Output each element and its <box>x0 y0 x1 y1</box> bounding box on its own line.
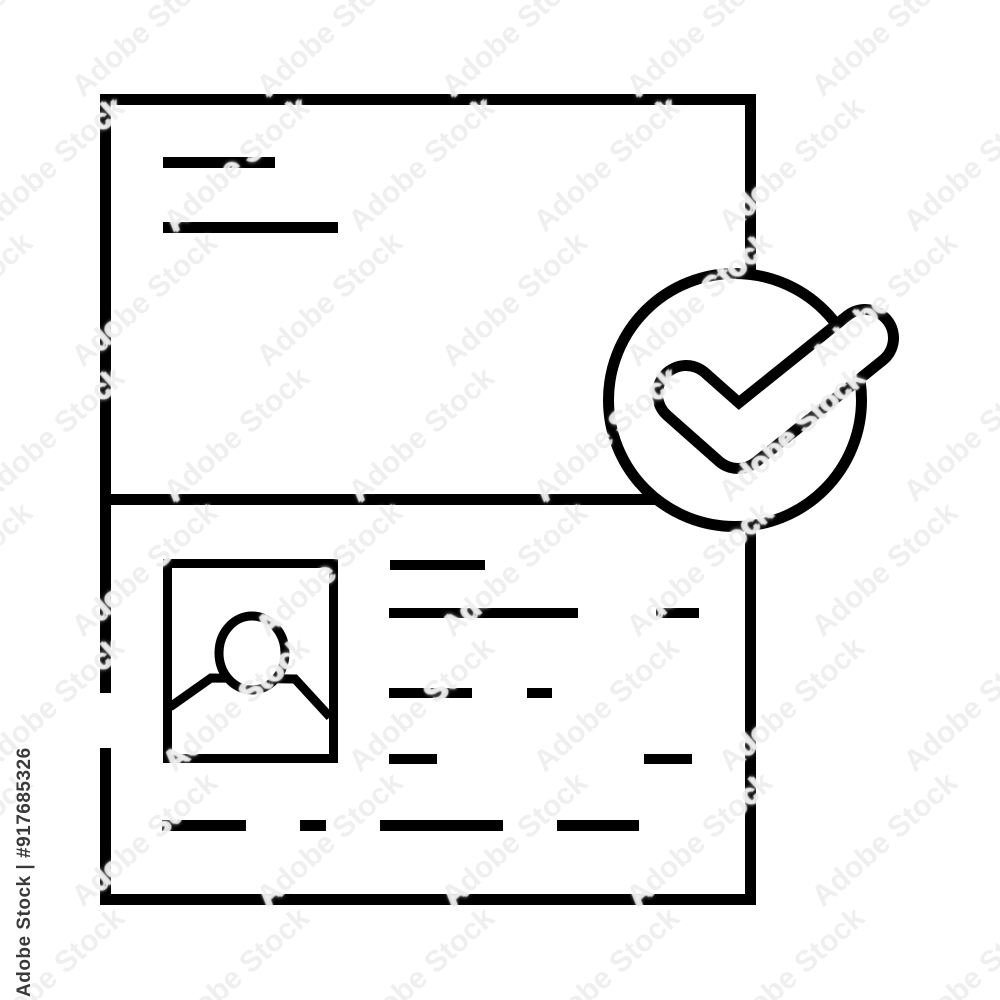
detail-line-3b <box>527 688 552 698</box>
watermark-id-label: Adobe Stock | #917685326 <box>14 747 36 997</box>
detail-line-4a <box>389 754 437 764</box>
verified-id-document-icon <box>0 0 1000 1000</box>
title-line-long <box>163 222 338 233</box>
detail-line-1 <box>390 560 485 570</box>
document-left-border-gap <box>93 693 117 748</box>
dash-line-4 <box>557 820 639 831</box>
title-line-short <box>163 157 275 168</box>
detail-line-2b <box>656 608 699 618</box>
dash-line-2 <box>300 820 326 831</box>
dash-line-3 <box>380 820 503 831</box>
dash-line-1 <box>162 820 246 831</box>
detail-line-4b <box>644 754 692 764</box>
stock-image-canvas: Adobe StockAdobe StockAdobe StockAdobe S… <box>0 0 1000 1000</box>
detail-line-2a <box>389 608 578 618</box>
detail-line-3a <box>389 688 472 698</box>
person-head <box>219 616 285 690</box>
